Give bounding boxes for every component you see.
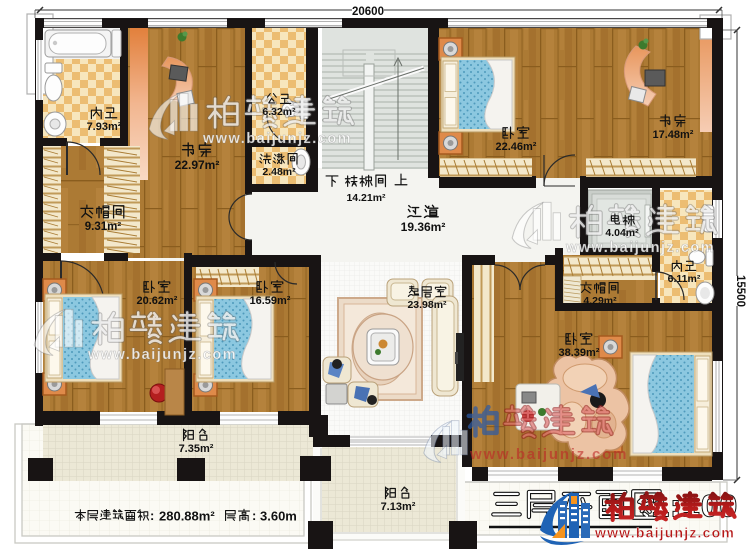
svg-text::: : <box>150 508 154 523</box>
svg-text:14.21m²: 14.21m² <box>346 192 386 204</box>
svg-text:16.59m²: 16.59m² <box>250 295 291 307</box>
svg-text:20.62m²: 20.62m² <box>137 295 178 307</box>
svg-text:www.baijunjz.com: www.baijunjz.com <box>565 240 715 256</box>
svg-text:20600: 20600 <box>352 6 384 18</box>
svg-text:4.29m²: 4.29m² <box>583 295 617 307</box>
svg-text:3.60m: 3.60m <box>260 509 297 524</box>
svg-text:22.46m²: 22.46m² <box>496 141 537 153</box>
svg-text:7.13m²: 7.13m² <box>381 501 416 513</box>
svg-text:19.36m²: 19.36m² <box>401 220 446 234</box>
svg-text:6.11m²: 6.11m² <box>668 273 701 285</box>
svg-text:7.35m²: 7.35m² <box>179 443 214 455</box>
svg-text:23.98m²: 23.98m² <box>407 299 447 311</box>
svg-text:www.baijunjz.com: www.baijunjz.com <box>202 131 352 147</box>
svg-text:www.baijunjz.com: www.baijunjz.com <box>87 347 237 363</box>
svg-text:7.93m²: 7.93m² <box>87 121 122 133</box>
svg-text:www.baijunjz.com: www.baijunjz.com <box>594 525 735 541</box>
svg-text:17.48m²: 17.48m² <box>653 129 694 141</box>
svg-text:6.32m²: 6.32m² <box>262 106 296 118</box>
svg-text::: : <box>252 508 256 523</box>
svg-text:www.baijunjz.com: www.baijunjz.com <box>469 446 628 463</box>
svg-text:280.88m²: 280.88m² <box>159 509 215 524</box>
svg-text:22.97m²: 22.97m² <box>175 158 220 172</box>
svg-text:15500: 15500 <box>734 275 746 307</box>
svg-text:9.31m²: 9.31m² <box>85 221 122 233</box>
svg-text:4.04m²: 4.04m² <box>605 227 639 239</box>
svg-text:38.39m²: 38.39m² <box>559 347 600 359</box>
svg-text:2.48m²: 2.48m² <box>262 166 296 178</box>
